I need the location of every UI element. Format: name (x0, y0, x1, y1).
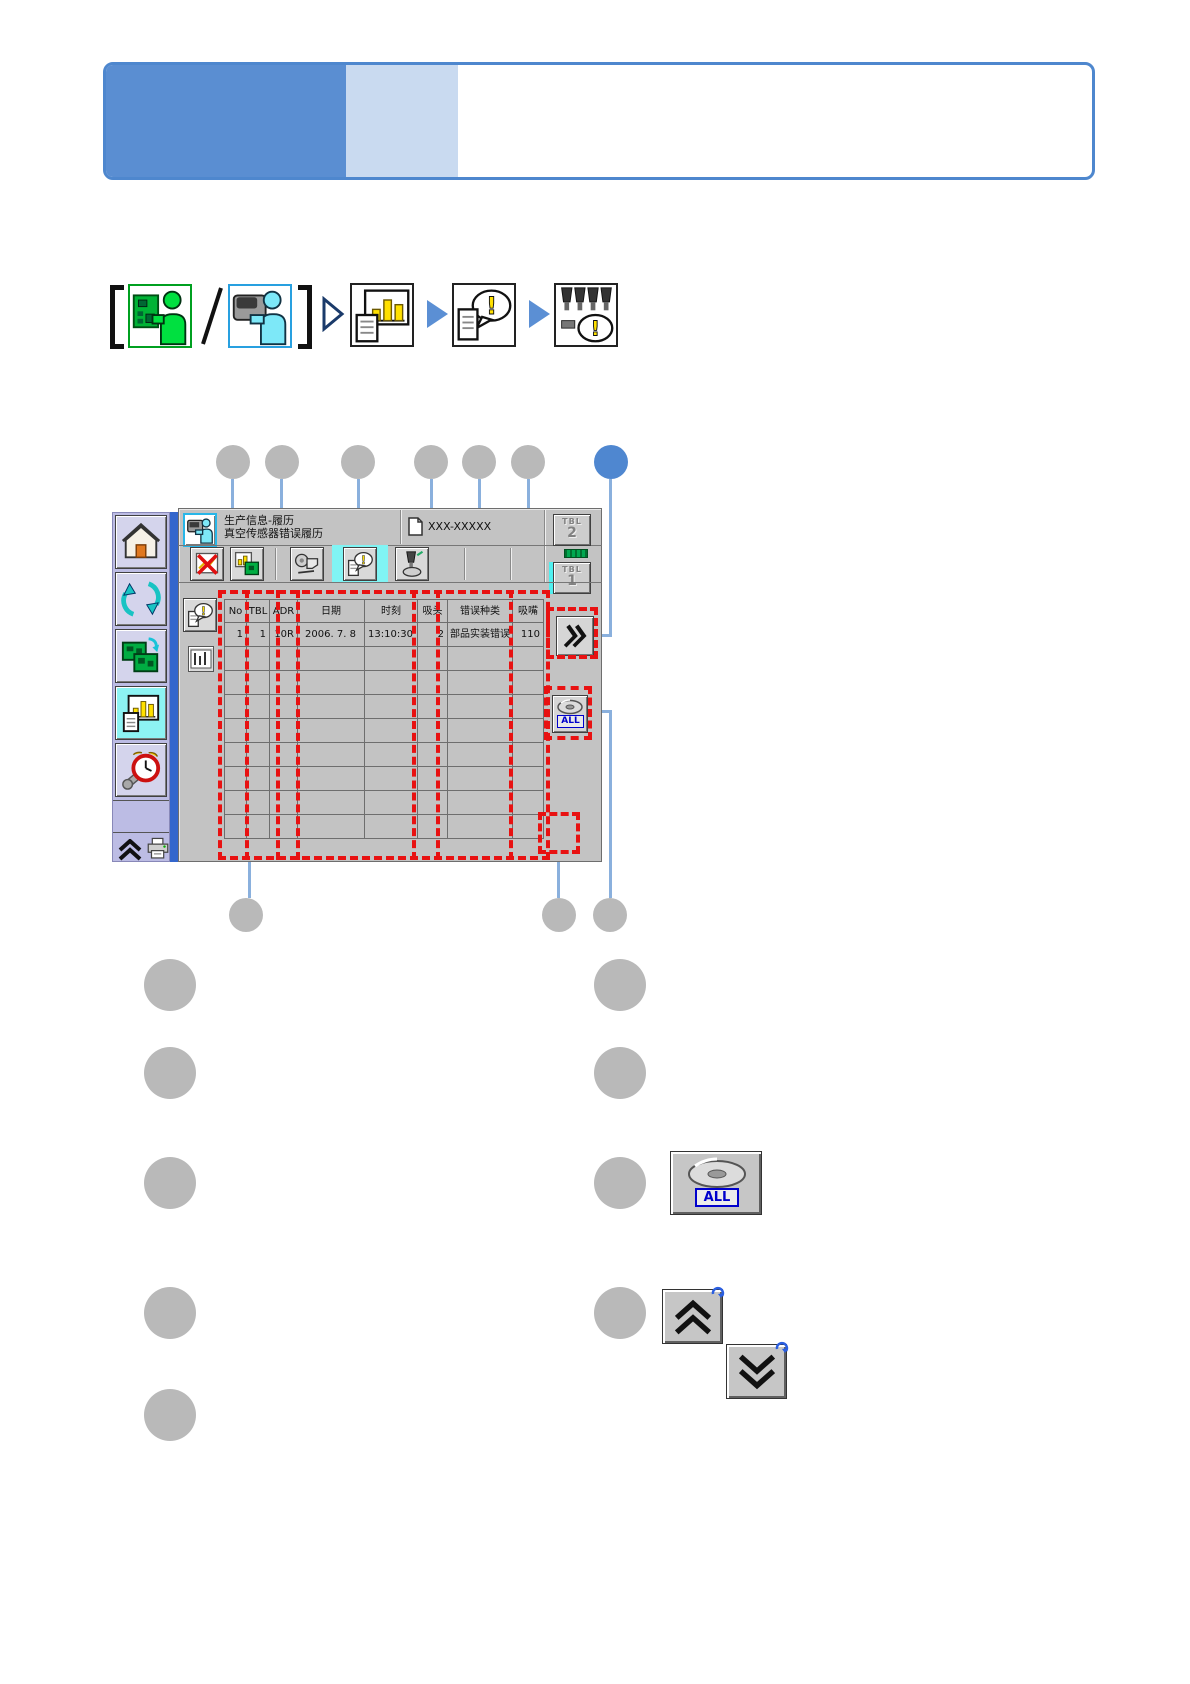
nav-open-bracket (110, 285, 124, 349)
production-info-icon (350, 283, 414, 347)
speech-question-icon: ! (186, 601, 214, 629)
all-button-illustration: ALL (670, 1151, 762, 1215)
column-highlight-rail (412, 590, 416, 860)
sidebar-production-info-button[interactable] (115, 686, 167, 740)
legend-item-circle (144, 1157, 196, 1209)
nav-slash (200, 286, 224, 346)
callout-circle (341, 445, 375, 479)
feeder-icon (293, 550, 321, 578)
production-info-icon (120, 692, 162, 734)
pcb-boards-icon (120, 635, 162, 677)
legend-item-circle (594, 1047, 646, 1099)
tbl2-button[interactable]: TBL 2 (553, 514, 591, 546)
callout-line (609, 710, 612, 898)
error-history-icon: ! (346, 550, 374, 578)
screen-title: 生产信息-履历 真空传感器错误履历 (224, 514, 323, 540)
machine-operator-icon (186, 516, 214, 544)
chapter-banner (103, 62, 1095, 180)
callout-circle (462, 445, 496, 479)
titlebar-rule (178, 545, 602, 546)
titlebar-separator (400, 510, 402, 544)
sidebar-home-button[interactable] (115, 515, 167, 569)
callout-circle-highlighted (594, 445, 628, 479)
column-highlight-rail (436, 590, 440, 860)
callout-circle (265, 445, 299, 479)
disk-icon (673, 1154, 761, 1190)
pcb-operator-icon (128, 284, 192, 348)
column-highlight-rail (276, 590, 280, 860)
callout-line (248, 860, 251, 898)
ui-sidebar-divider (170, 512, 178, 862)
manual-page: ! ! (0, 0, 1190, 1684)
all-button-label: ALL (695, 1188, 739, 1207)
svg-text:!: ! (201, 604, 206, 618)
page-scroll-buttons-illustration (662, 1287, 789, 1344)
chapter-banner-tint (346, 65, 458, 177)
repeat-arrow-icon (774, 1339, 790, 1355)
tbl1-number: 1 (554, 574, 590, 588)
callout-circle (511, 445, 545, 479)
nav-arrow-icon (424, 298, 450, 334)
callout-circle (216, 445, 250, 479)
toolbar-rule (178, 582, 602, 583)
collapse-up-button[interactable] (117, 839, 143, 865)
table-highlight-rect (218, 590, 550, 860)
svg-text:!: ! (591, 317, 600, 341)
nozzle-error-icon: ! (554, 283, 618, 347)
error-history-icon: ! (452, 283, 516, 347)
sidebar-separator (113, 832, 169, 833)
more-button-highlight-rect (546, 607, 598, 659)
all-button-highlight-rect (544, 686, 592, 740)
nozzle-tool-icon (398, 550, 426, 578)
sidebar-changeover-button[interactable] (115, 572, 167, 626)
double-chevron-down-icon (735, 1353, 779, 1391)
legend-item-circle (594, 1287, 646, 1339)
callout-circle (414, 445, 448, 479)
page-down-button (726, 1344, 787, 1399)
legend-item-circle (144, 1047, 196, 1099)
operator-mode-button[interactable] (183, 513, 217, 547)
legend-item-circle (144, 959, 196, 1011)
toolbar-separator (510, 548, 512, 580)
chapter-banner-block (106, 65, 346, 177)
machine-operator-icon (228, 284, 292, 348)
home-icon (120, 521, 162, 563)
toolbar-separator (464, 548, 466, 580)
toolbar-board-graph-button[interactable] (230, 547, 264, 581)
clock-wrench-icon (120, 749, 162, 791)
toolbar-nozzle-error-button[interactable] (395, 547, 429, 581)
nozzle-grid-icon (189, 647, 213, 671)
legend-item-circle (594, 1157, 646, 1209)
toolbar-error-history-button[interactable]: ! (343, 547, 377, 581)
column-highlight-rail (509, 590, 513, 860)
sidebar-maintenance-button[interactable] (115, 743, 167, 797)
chart-board-icon (233, 550, 261, 578)
legend-item-circle (594, 959, 646, 1011)
callout-line (609, 479, 612, 637)
column-highlight-rail (296, 590, 300, 860)
status-badge (564, 549, 588, 558)
screen-title-line2: 真空传感器错误履历 (224, 527, 323, 540)
callout-circle (542, 898, 576, 932)
recycle-arrows-icon (120, 578, 162, 620)
tbl2-number: 2 (554, 526, 590, 540)
svg-text:!: ! (486, 291, 497, 320)
titlebar-separator (544, 510, 546, 582)
double-chevron-up-icon (671, 1298, 715, 1336)
tbl1-button[interactable]: TBL 1 (553, 562, 591, 594)
callout-circle (229, 898, 263, 932)
toolbar-clear-graph-button[interactable] (190, 547, 224, 581)
nav-arrow-icon (526, 298, 552, 334)
double-chevron-up-icon (117, 839, 143, 861)
repeat-arrow-icon (710, 1284, 726, 1300)
error-detail-button[interactable]: ! (183, 598, 217, 632)
print-button[interactable] (145, 836, 171, 866)
toolbar-separator (275, 548, 277, 580)
column-highlight-rail (245, 590, 249, 860)
nozzle-stat-button[interactable] (188, 646, 214, 672)
nav-close-bracket (298, 285, 312, 349)
program-name-label: XXX-XXXXX (428, 520, 491, 533)
printer-icon (145, 836, 171, 862)
legend-item-circle (144, 1287, 196, 1339)
svg-text:!: ! (361, 553, 366, 567)
nav-arrow-outline-icon (320, 296, 346, 336)
toolbar-feeder-error-button[interactable] (290, 547, 324, 581)
sidebar-board-data-button[interactable] (115, 629, 167, 683)
sidebar-separator (113, 800, 169, 801)
chart-delete-icon (193, 550, 221, 578)
callout-circle (593, 898, 627, 932)
legend-item-circle (144, 1389, 196, 1441)
page-up-button (662, 1289, 723, 1344)
document-icon (408, 517, 423, 540)
screen-title-line1: 生产信息-履历 (224, 514, 323, 527)
scroll-area-highlight-rect (538, 812, 580, 854)
